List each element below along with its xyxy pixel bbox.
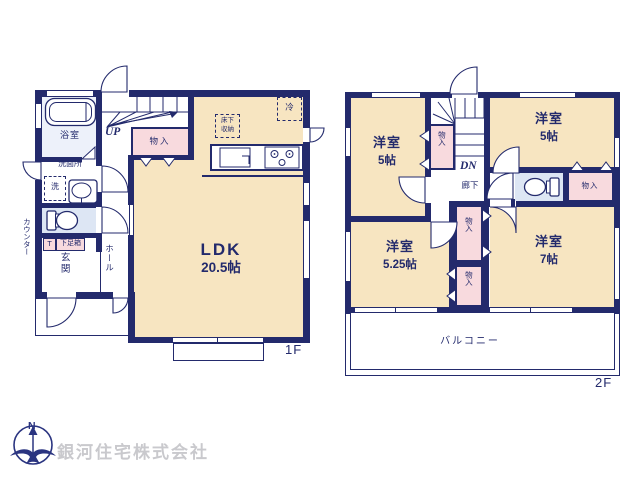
room-toilet-2f (515, 173, 563, 201)
terrace (173, 343, 264, 361)
room-label-hall: ホール (104, 244, 114, 273)
sliding-glass-door (490, 307, 572, 313)
label-shoe-box: 下足箱 (60, 240, 81, 248)
wall (41, 233, 102, 238)
room-bathroom (41, 96, 96, 157)
window (345, 232, 351, 281)
room-size-yoshitsu-3: 5.25帖 (383, 259, 417, 272)
room-label-entrance: 玄関 (58, 252, 69, 275)
window (520, 92, 575, 98)
room-label-washroom: 洗面所 (58, 160, 82, 169)
label-underfloor-1: 床下 (221, 117, 234, 124)
floor-label-2f: 2F (595, 376, 612, 391)
door-threshold (511, 173, 515, 199)
closet-2f-upper (455, 202, 483, 262)
door-threshold (303, 128, 310, 142)
room-toilet-1f (41, 208, 96, 233)
door-arc-stairs-1f (101, 66, 127, 92)
room-size-yoshitsu-1: 5帖 (378, 155, 396, 168)
room-label-bathroom: 浴室 (60, 130, 80, 140)
door-arc-stairs-2f (450, 67, 477, 94)
door-threshold (47, 292, 76, 299)
wall (345, 216, 431, 222)
stairs-area-1f (102, 93, 188, 127)
label-toilet-counter: カウンター (22, 218, 30, 256)
door-center-tick (395, 307, 396, 313)
porch-line (35, 298, 36, 336)
wall (519, 167, 620, 173)
floorplan-page: 浴室 洗面所 洗 カウンター T 下足箱 玄関 ホール 物入 UP LDK 20… (0, 0, 640, 480)
wall (41, 203, 96, 208)
label-balcony: バルコニー (440, 336, 500, 347)
sliding-door-line (133, 205, 134, 235)
company-name: 銀河住宅株式会社 (57, 443, 209, 462)
room-size-yoshitsu-4: 7帖 (540, 254, 558, 267)
door-threshold (96, 207, 102, 233)
compass-north-label: N (28, 421, 36, 433)
label-stairs-down: DN (460, 160, 477, 173)
wall (449, 201, 455, 313)
door-arc-front (47, 298, 76, 327)
door-threshold (35, 162, 42, 180)
door-arc-porch (113, 298, 128, 313)
label-closet-1f: 物入 (149, 137, 170, 147)
window (372, 92, 420, 98)
sliding-door-line (129, 205, 130, 235)
porch-line (35, 335, 129, 336)
window (35, 104, 42, 128)
room-label-ldk: LDK (201, 240, 242, 259)
label-washer: 洗 (51, 183, 59, 192)
wall (188, 90, 194, 158)
window (303, 183, 310, 205)
wall (128, 235, 134, 292)
door-threshold (425, 177, 431, 203)
window (303, 221, 310, 278)
counter-front-line (202, 175, 304, 177)
window (345, 128, 351, 156)
wall (128, 292, 135, 343)
door-threshold (452, 92, 478, 98)
room-label-yoshitsu-3: 洋室 (386, 240, 414, 255)
label-closet-2f-upper: 物入 (464, 217, 472, 232)
label-underfloor-2: 収納 (221, 126, 234, 133)
wall (455, 262, 483, 266)
door-threshold (102, 90, 129, 97)
wall (484, 92, 490, 207)
floor-label-1f: 1F (285, 343, 302, 358)
label-closet-2f-stairs: 物入 (437, 131, 445, 146)
door-arc-toilet-2f (487, 173, 513, 199)
window (614, 228, 620, 299)
label-fridge: 冷 (285, 103, 294, 113)
washbasin-icon (69, 180, 97, 203)
window (47, 90, 93, 97)
door-arc-washroom (102, 166, 128, 192)
label-stairs-up: UP (105, 126, 120, 139)
wall (128, 158, 134, 205)
wall (483, 201, 489, 313)
room-size-ldk: 20.5帖 (201, 260, 241, 275)
wall (484, 167, 493, 173)
entrance-step-line (100, 252, 101, 293)
wall (128, 155, 194, 160)
kitchen-counter (210, 144, 304, 171)
sliding-glass-door (173, 337, 263, 343)
window (614, 138, 620, 167)
room-label-yoshitsu-4: 洋室 (535, 235, 563, 250)
sliding-glass-door (355, 307, 437, 313)
door-threshold (113, 292, 128, 299)
door-center-tick (217, 337, 218, 343)
door-arc-kitchen (310, 128, 324, 142)
label-closet-2f-lower: 物入 (464, 271, 472, 286)
wall (516, 201, 620, 207)
door-threshold (96, 166, 102, 192)
room-label-yoshitsu-1: 洋室 (373, 136, 401, 151)
room-size-yoshitsu-2: 5帖 (540, 131, 558, 144)
room-label-yoshitsu-2: 洋室 (535, 112, 563, 127)
door-center-tick (530, 307, 531, 313)
label-corridor: 廊下 (461, 181, 478, 191)
label-closet-2f-right: 物入 (582, 182, 599, 190)
label-toilet-t: T (47, 240, 52, 248)
door-arc-toilet-1f (102, 207, 128, 233)
